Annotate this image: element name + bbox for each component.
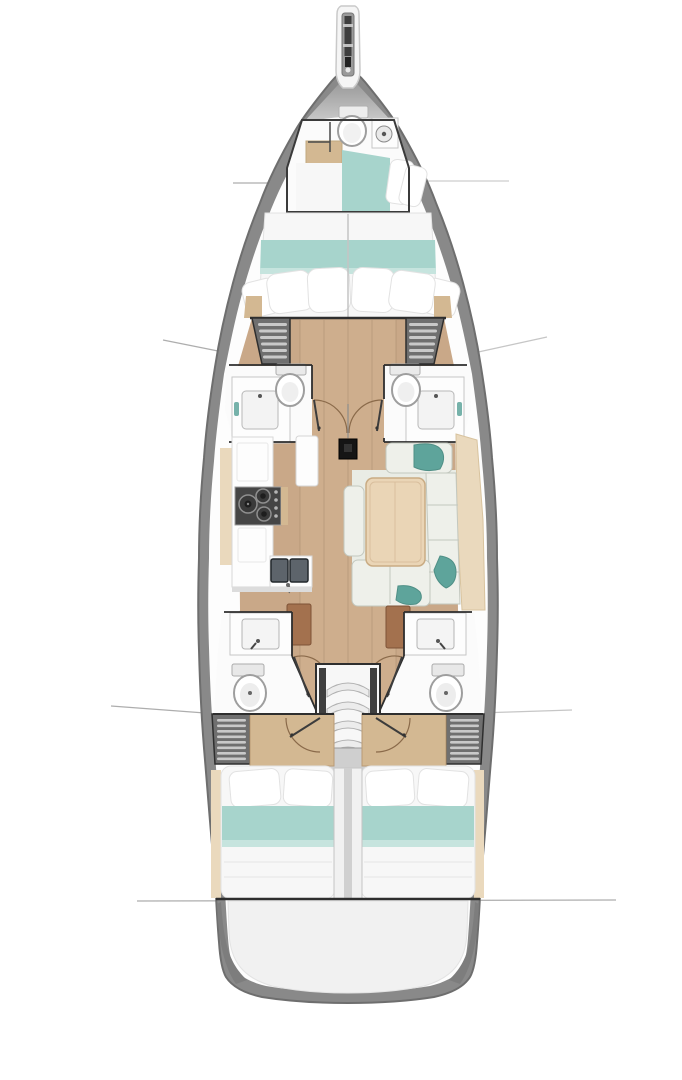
forepeak-toilet <box>338 106 368 146</box>
cabin-headboard <box>250 714 334 766</box>
cabin-headboard <box>362 714 446 766</box>
mast <box>339 439 357 459</box>
wardrobe-louvered <box>446 714 484 764</box>
cabin-divider <box>334 768 362 899</box>
anchor-shank <box>345 16 352 56</box>
door-knob <box>375 426 378 429</box>
stove <box>235 487 281 525</box>
door-knob <box>317 426 320 429</box>
anchor-tip <box>345 57 351 67</box>
towel <box>234 402 239 416</box>
roller-pin <box>343 44 353 47</box>
sink-drain <box>382 132 386 136</box>
hull-shelf <box>220 448 232 565</box>
yacht-floorplan <box>0 0 682 1080</box>
teal-stripe <box>362 840 474 847</box>
pillow <box>417 768 470 808</box>
pillow <box>365 768 415 807</box>
door-knob <box>306 692 309 695</box>
teal-cushion <box>414 444 444 471</box>
stove-trim <box>281 487 288 525</box>
teal-stripe <box>222 840 334 847</box>
counter-shadow <box>232 587 312 592</box>
transom <box>217 901 479 993</box>
leader-line <box>111 706 205 713</box>
door-knob <box>402 733 405 736</box>
door-knob <box>386 692 389 695</box>
towel <box>457 402 462 416</box>
sink-basin <box>417 619 454 649</box>
pillow <box>387 269 436 315</box>
bowsprit <box>336 6 360 88</box>
pillow <box>229 768 282 808</box>
counter-inboard <box>296 436 318 486</box>
toilet-bowl-inner <box>282 382 299 402</box>
berth-headboard <box>306 141 342 166</box>
pillow <box>283 768 333 807</box>
sink-basin <box>242 619 279 649</box>
transom-floor <box>228 901 468 993</box>
settee-side-bench <box>344 486 364 556</box>
pillow <box>307 267 351 313</box>
door-knob <box>290 733 293 736</box>
pillow <box>351 267 395 313</box>
bow-fitting <box>346 68 351 73</box>
sink-faucet <box>258 394 262 398</box>
sink-faucet <box>434 394 438 398</box>
bedside-shelf <box>211 770 221 898</box>
toilet-bowl-inner <box>343 123 361 143</box>
bedside-shelf <box>434 296 452 318</box>
toilet-bowl-inner <box>398 382 415 402</box>
bedside-shelf <box>244 296 262 318</box>
roller-pin <box>343 24 353 27</box>
salon-table <box>366 478 425 566</box>
floorplan-svg <box>0 0 682 1080</box>
berth-teal-spread <box>342 150 390 211</box>
owner-cabin <box>240 213 462 320</box>
wardrobe-louvered <box>212 714 250 764</box>
berth-mattress <box>296 163 344 211</box>
